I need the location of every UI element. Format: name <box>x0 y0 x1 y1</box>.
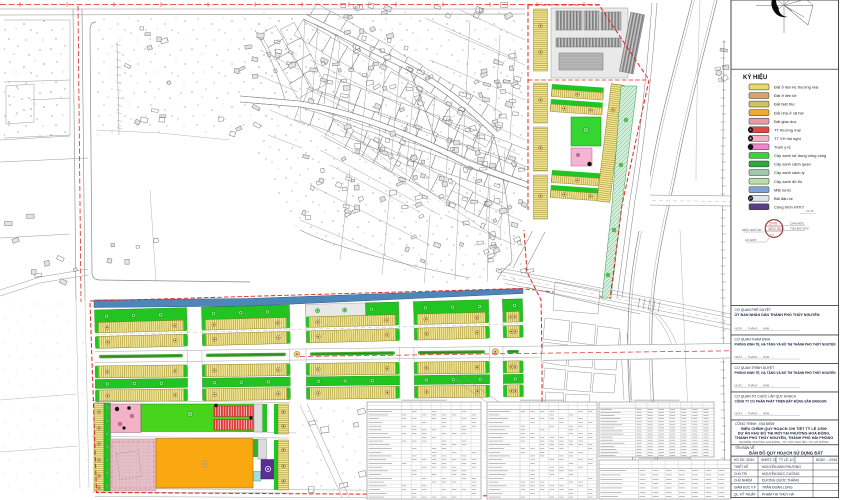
svg-text:Đất giáo dục: Đất giáo dục <box>774 119 796 124</box>
svg-text:Đất biệt thự: Đất biệt thự <box>774 102 795 107</box>
svg-text:ĐIỀU CHỈNH QUY HOẠCH CHI TIẾT: ĐIỀU CHỈNH QUY HOẠCH CHI TIẾT TỶ LỆ 1/50… <box>741 426 827 431</box>
svg-text:Đất nhà ở xã hội: Đất nhà ở xã hội <box>774 110 804 115</box>
svg-text:PHÒNG KINH TẾ, HẠ TẦNG VÀ ĐÔ T: PHÒNG KINH TẾ, HẠ TẦNG VÀ ĐÔ THỊ THÀNH P… <box>735 341 836 346</box>
svg-text:Cây xanh đô thị: Cây xanh đô thị <box>774 179 802 184</box>
svg-text:ỦY BAN NHÂN DÂN THÀNH PHỐ THỦY: ỦY BAN NHÂN DÂN THÀNH PHỐ THỦY NGUYÊN <box>735 312 820 317</box>
svg-text:GIÁM ĐỐC V.P: GIÁM ĐỐC V.P <box>734 485 756 490</box>
svg-text:NGÀY: .../2024: NGÀY: .../2024 <box>816 458 837 462</box>
svg-text:NGÀY ..... THÁNG ..... NĂM ...: NGÀY ..... THÁNG ..... NĂM ..... <box>735 355 775 359</box>
svg-text:NGUYỄN ĐỨC CƯỜNG: NGUYỄN ĐỨC CƯỜNG <box>762 471 800 476</box>
svg-text:CƠ QUAN PHÊ DUYỆT: CƠ QUAN PHÊ DUYỆT <box>735 307 771 312</box>
svg-text:Đất ở liền kề: Đất ở liền kề <box>774 93 797 98</box>
svg-text:x y: x y <box>770 233 774 237</box>
svg-text:NGUYỄN ANH PHƯƠNG: NGUYỄN ANH PHƯƠNG <box>762 464 801 469</box>
svg-text:TỌA ĐỘ GỐC: TỌA ĐỘ GỐC <box>790 226 810 231</box>
svg-text:HỒ SƠ: 30/10: HỒ SƠ: 30/10 <box>734 457 755 462</box>
svg-text:NGÀY ..... THÁNG ..... NĂM ...: NGÀY ..... THÁNG ..... NĂM ..... <box>735 327 775 331</box>
svg-text:CƠ QUAN TRÌNH DUYỆT: CƠ QUAN TRÌNH DUYỆT <box>735 365 775 370</box>
svg-text:Công trình HTKT: Công trình HTKT <box>774 204 805 209</box>
svg-text:THÀNH PHỐ THỦY NGUYÊN, THÀNH P: THÀNH PHỐ THỦY NGUYÊN, THÀNH PHỐ HẢI PHÒ… <box>735 435 833 440</box>
svg-text:TT thương mại: TT thương mại <box>774 127 801 132</box>
svg-text:CÔNG TY CỔ PHẦN PHÁT TRIỂN BẤT: CÔNG TY CỔ PHẦN PHÁT TRIỂN BẤT ĐỘNG SẢN … <box>735 398 827 403</box>
svg-text:DƯƠNG QUỐC THẮNG: DƯƠNG QUỐC THẮNG <box>762 478 800 483</box>
svg-text:NGÀY ..... THÁNG ..... NĂM ...: NGÀY ..... THÁNG ..... NĂM ..... <box>735 384 775 388</box>
svg-text:CẮM MỐC: CẮM MỐC <box>790 221 805 226</box>
svg-text:DỰ ÁN KHU ĐÔ THỊ MỚI TẠI PHƯỜN: DỰ ÁN KHU ĐÔ THỊ MỚI TẠI PHƯỜNG HOA ĐỘNG… <box>738 431 831 436</box>
svg-text:21.05: 21.05 <box>806 209 814 213</box>
svg-text:Trạm y tế: Trạm y tế <box>774 145 792 150</box>
svg-text:Cây xanh sử dụng công cộng: Cây xanh sử dụng công cộng <box>774 153 826 158</box>
svg-text:Bãi đậu xe: Bãi đậu xe <box>774 196 794 201</box>
svg-text:KÝ HIỆU: KÝ HIỆU <box>743 73 767 81</box>
svg-text:Mặt nước: Mặt nước <box>774 187 791 192</box>
svg-text:TỶ LỆ: 1/1: TỶ LỆ: 1/1 <box>779 457 794 462</box>
svg-text:NGÀY ..... THÁNG ..... NĂM ...: NGÀY ..... THÁNG ..... NĂM ..... <box>735 412 775 416</box>
svg-text:MỐC GIỚI XD: MỐC GIỚI XD <box>742 227 762 232</box>
svg-text:SHEET: 01: SHEET: 01 <box>761 458 777 462</box>
svg-text:CHỦ NHIỆM: CHỦ NHIỆM <box>734 478 752 483</box>
svg-text:QL. KỸ THUẬT: QL. KỸ THUẬT <box>734 491 756 496</box>
svg-text:LỘ GIỚI: LỘ GIỚI <box>745 237 757 242</box>
svg-text:CHỦ TRÌ: CHỦ TRÌ <box>734 471 747 476</box>
svg-text:MỐC GIỚI: MỐC GIỚI <box>769 226 784 231</box>
svg-text:CƠ QUAN TỔ CHỨC LẬP QUY HOẠCH: CƠ QUAN TỔ CHỨC LẬP QUY HOẠCH <box>735 393 797 398</box>
svg-text:TT VH hội nghị: TT VH hội nghị <box>774 136 801 141</box>
svg-text:Đất ở liền kề thương mại: Đất ở liền kề thương mại <box>774 85 818 90</box>
svg-text:CÔNG TRÌNH - ĐỊA ĐIỂM: CÔNG TRÌNH - ĐỊA ĐIỂM <box>735 421 774 426</box>
svg-text:CƠ QUAN THẨM ĐỊNH: CƠ QUAN THẨM ĐỊNH <box>735 336 771 341</box>
svg-text:BẢN ĐỒ QUY HOẠCH SỬ DỤNG ĐẤT: BẢN ĐỒ QUY HOẠCH SỬ DỤNG ĐẤT <box>749 451 823 456</box>
svg-text:THIẾT KẾ: THIẾT KẾ <box>734 464 748 469</box>
svg-text:PHẠM THỊ THÚY HÀ: PHẠM THỊ THÚY HÀ <box>762 491 795 496</box>
svg-text:Cây xanh cách ly: Cây xanh cách ly <box>774 170 804 175</box>
svg-text:TRẦN ĐOÀN LONG: TRẦN ĐOÀN LONG <box>762 486 793 490</box>
svg-text:Cây xanh cảnh quan: Cây xanh cảnh quan <box>774 162 811 167</box>
svg-text:P: P <box>749 196 752 201</box>
svg-text:29.45: 29.45 <box>769 222 777 226</box>
svg-text:PHÒNG KINH TẾ, HẠ TẦNG VÀ ĐÔ T: PHÒNG KINH TẾ, HẠ TẦNG VÀ ĐÔ THỊ THÀNH P… <box>735 370 836 375</box>
svg-text:TÊN BẢN VẼ: TÊN BẢN VẼ <box>735 445 755 450</box>
